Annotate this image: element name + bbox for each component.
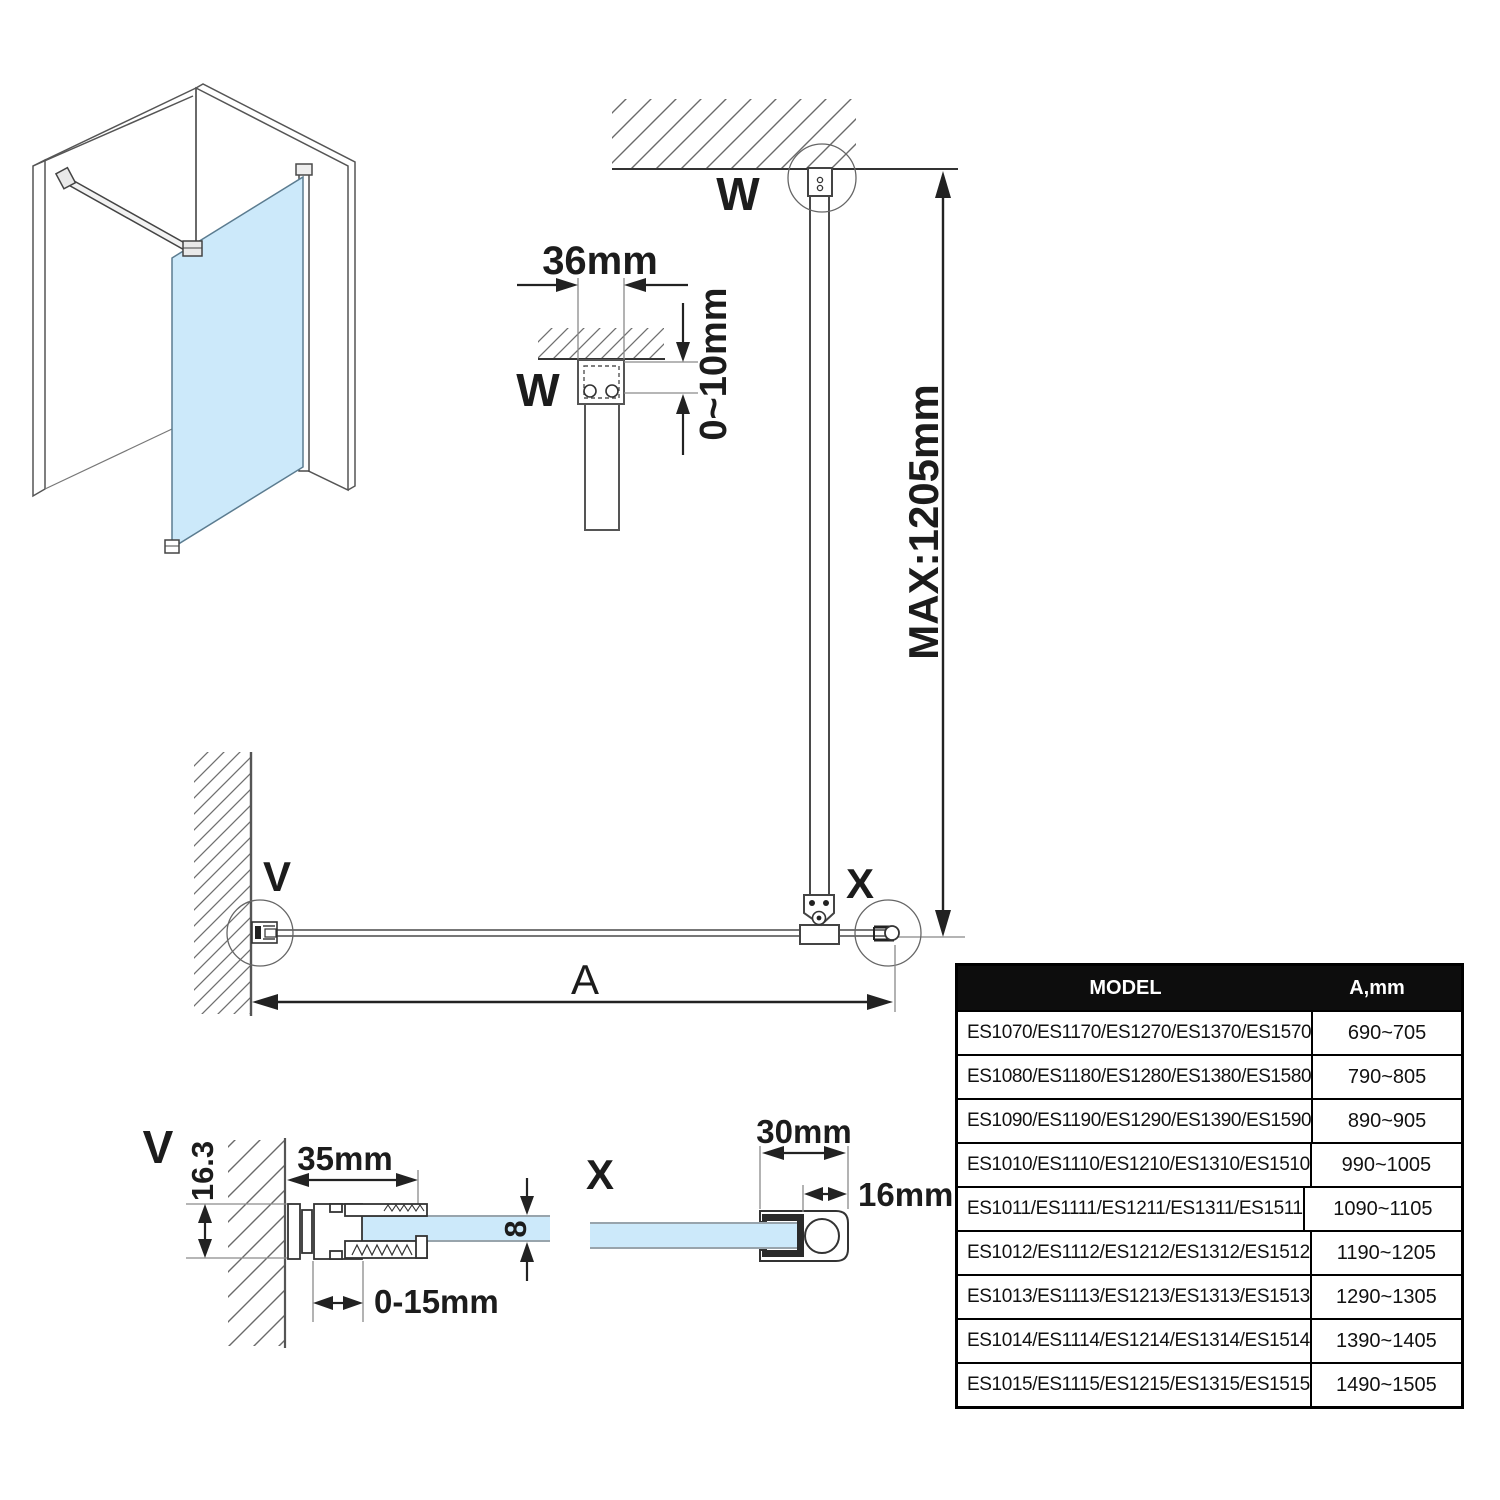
table-row: ES1010/ES1110/ES1210/ES1310/ES1510 990~1… [958, 1142, 1461, 1186]
table-row: ES1080/ES1180/ES1280/ES1380/ES1580 790~8… [958, 1054, 1461, 1098]
table-row: ES1011/ES1111/ES1211/ES1311/ES1511 1090~… [958, 1186, 1461, 1230]
col-header-a-mm: A,mm [1293, 977, 1461, 1000]
dim-bar-max-length: MAX:1205mm [900, 384, 947, 659]
model-cell: ES1012/ES1112/ES1212/ES1312/ES1512 [958, 1232, 1310, 1274]
support-bar-3d [65, 177, 190, 252]
range-cell: 1290~1305 [1310, 1276, 1461, 1318]
end-profile-tube [805, 1219, 839, 1253]
model-cell: ES1011/ES1111/ES1211/ES1311/ES1511 [958, 1188, 1303, 1230]
wall-hatch-plan [194, 752, 251, 1014]
table-row: ES1090/ES1190/ES1290/ES1390/ES1590 890~9… [958, 1098, 1461, 1142]
dim-wall-profile-width: 35mm [297, 1140, 392, 1177]
col-header-model: MODEL [958, 977, 1293, 1000]
wall-hatch-v [228, 1140, 285, 1346]
model-cell: ES1090/ES1190/ES1290/ES1390/ES1590 [958, 1100, 1311, 1142]
model-cell: ES1013/ES1113/ES1213/ES1313/ES1513 [958, 1276, 1310, 1318]
detail-w-section: 36mm 0~10mm W [516, 239, 735, 530]
range-cell: 1390~1405 [1310, 1320, 1461, 1362]
model-cell: ES1080/ES1180/ES1280/ES1380/ES1580 [958, 1056, 1311, 1098]
dim-bracket-width: 36mm [542, 239, 658, 283]
dim-a: A [571, 956, 599, 1003]
label-w-detail: W [516, 364, 560, 416]
dim-wall-adjustment: 0-15mm [374, 1283, 499, 1320]
glass-panel-3d [172, 177, 303, 548]
glass-strip-x [590, 1223, 803, 1248]
ceiling-hatch-small [538, 328, 664, 359]
range-cell: 990~1005 [1310, 1144, 1461, 1186]
label-x-plan: X [846, 860, 874, 907]
table-header-row: MODEL A,mm [958, 966, 1461, 1010]
model-cell: ES1010/ES1110/ES1210/ES1310/ES1510 [958, 1144, 1310, 1186]
model-cell: ES1070/ES1170/ES1270/ES1370/ES1570 [958, 1012, 1311, 1054]
range-cell: 790~805 [1311, 1056, 1461, 1098]
isometric-view [33, 84, 355, 553]
range-cell: 1190~1205 [1310, 1232, 1461, 1274]
detail-v-section: V 16.3 35mm [143, 1121, 550, 1348]
model-size-table: MODEL A,mm ES1070/ES1170/ES1270/ES1370/E… [955, 963, 1464, 1409]
range-cell: 690~705 [1311, 1012, 1461, 1054]
dim-glass-thickness: 8 [498, 1220, 533, 1237]
dim-bottom-profile-width: 30mm [756, 1113, 851, 1150]
model-cell: ES1015/ES1115/ES1215/ES1315/ES1515 [958, 1364, 1310, 1406]
table-row: ES1015/ES1115/ES1215/ES1315/ES1515 1490~… [958, 1362, 1461, 1406]
table-row: ES1012/ES1112/ES1212/ES1312/ES1512 1190~… [958, 1230, 1461, 1274]
detail-x-section: X 30mm 16mm [586, 1113, 953, 1261]
label-v-plan: V [263, 853, 291, 900]
range-cell: 1090~1105 [1303, 1188, 1461, 1230]
label-w-top: W [716, 168, 760, 220]
table-row: ES1014/ES1114/ES1214/ES1314/ES1514 1390~… [958, 1318, 1461, 1362]
dim-ceiling-gap: 0~10mm [693, 287, 735, 440]
ceiling-hatch [612, 99, 856, 169]
dim-bottom-profile-tube: 16mm [858, 1176, 953, 1213]
table-row: ES1070/ES1170/ES1270/ES1370/ES1570 690~7… [958, 1010, 1461, 1054]
dim-wall-profile-depth: 16.3 [185, 1141, 220, 1201]
range-cell: 890~905 [1311, 1100, 1461, 1142]
label-x-detail: X [586, 1151, 614, 1198]
model-cell: ES1014/ES1114/ES1214/ES1314/ES1514 [958, 1320, 1310, 1362]
left-wall [33, 160, 45, 496]
label-v-detail: V [143, 1121, 174, 1173]
glass-clamp-plan [800, 925, 839, 944]
range-cell: 1490~1505 [1310, 1364, 1461, 1406]
table-row: ES1013/ES1113/ES1213/ES1313/ES1513 1290~… [958, 1274, 1461, 1318]
page: { "labels": { "w_top": "W", "w_detail": … [0, 0, 1500, 1500]
